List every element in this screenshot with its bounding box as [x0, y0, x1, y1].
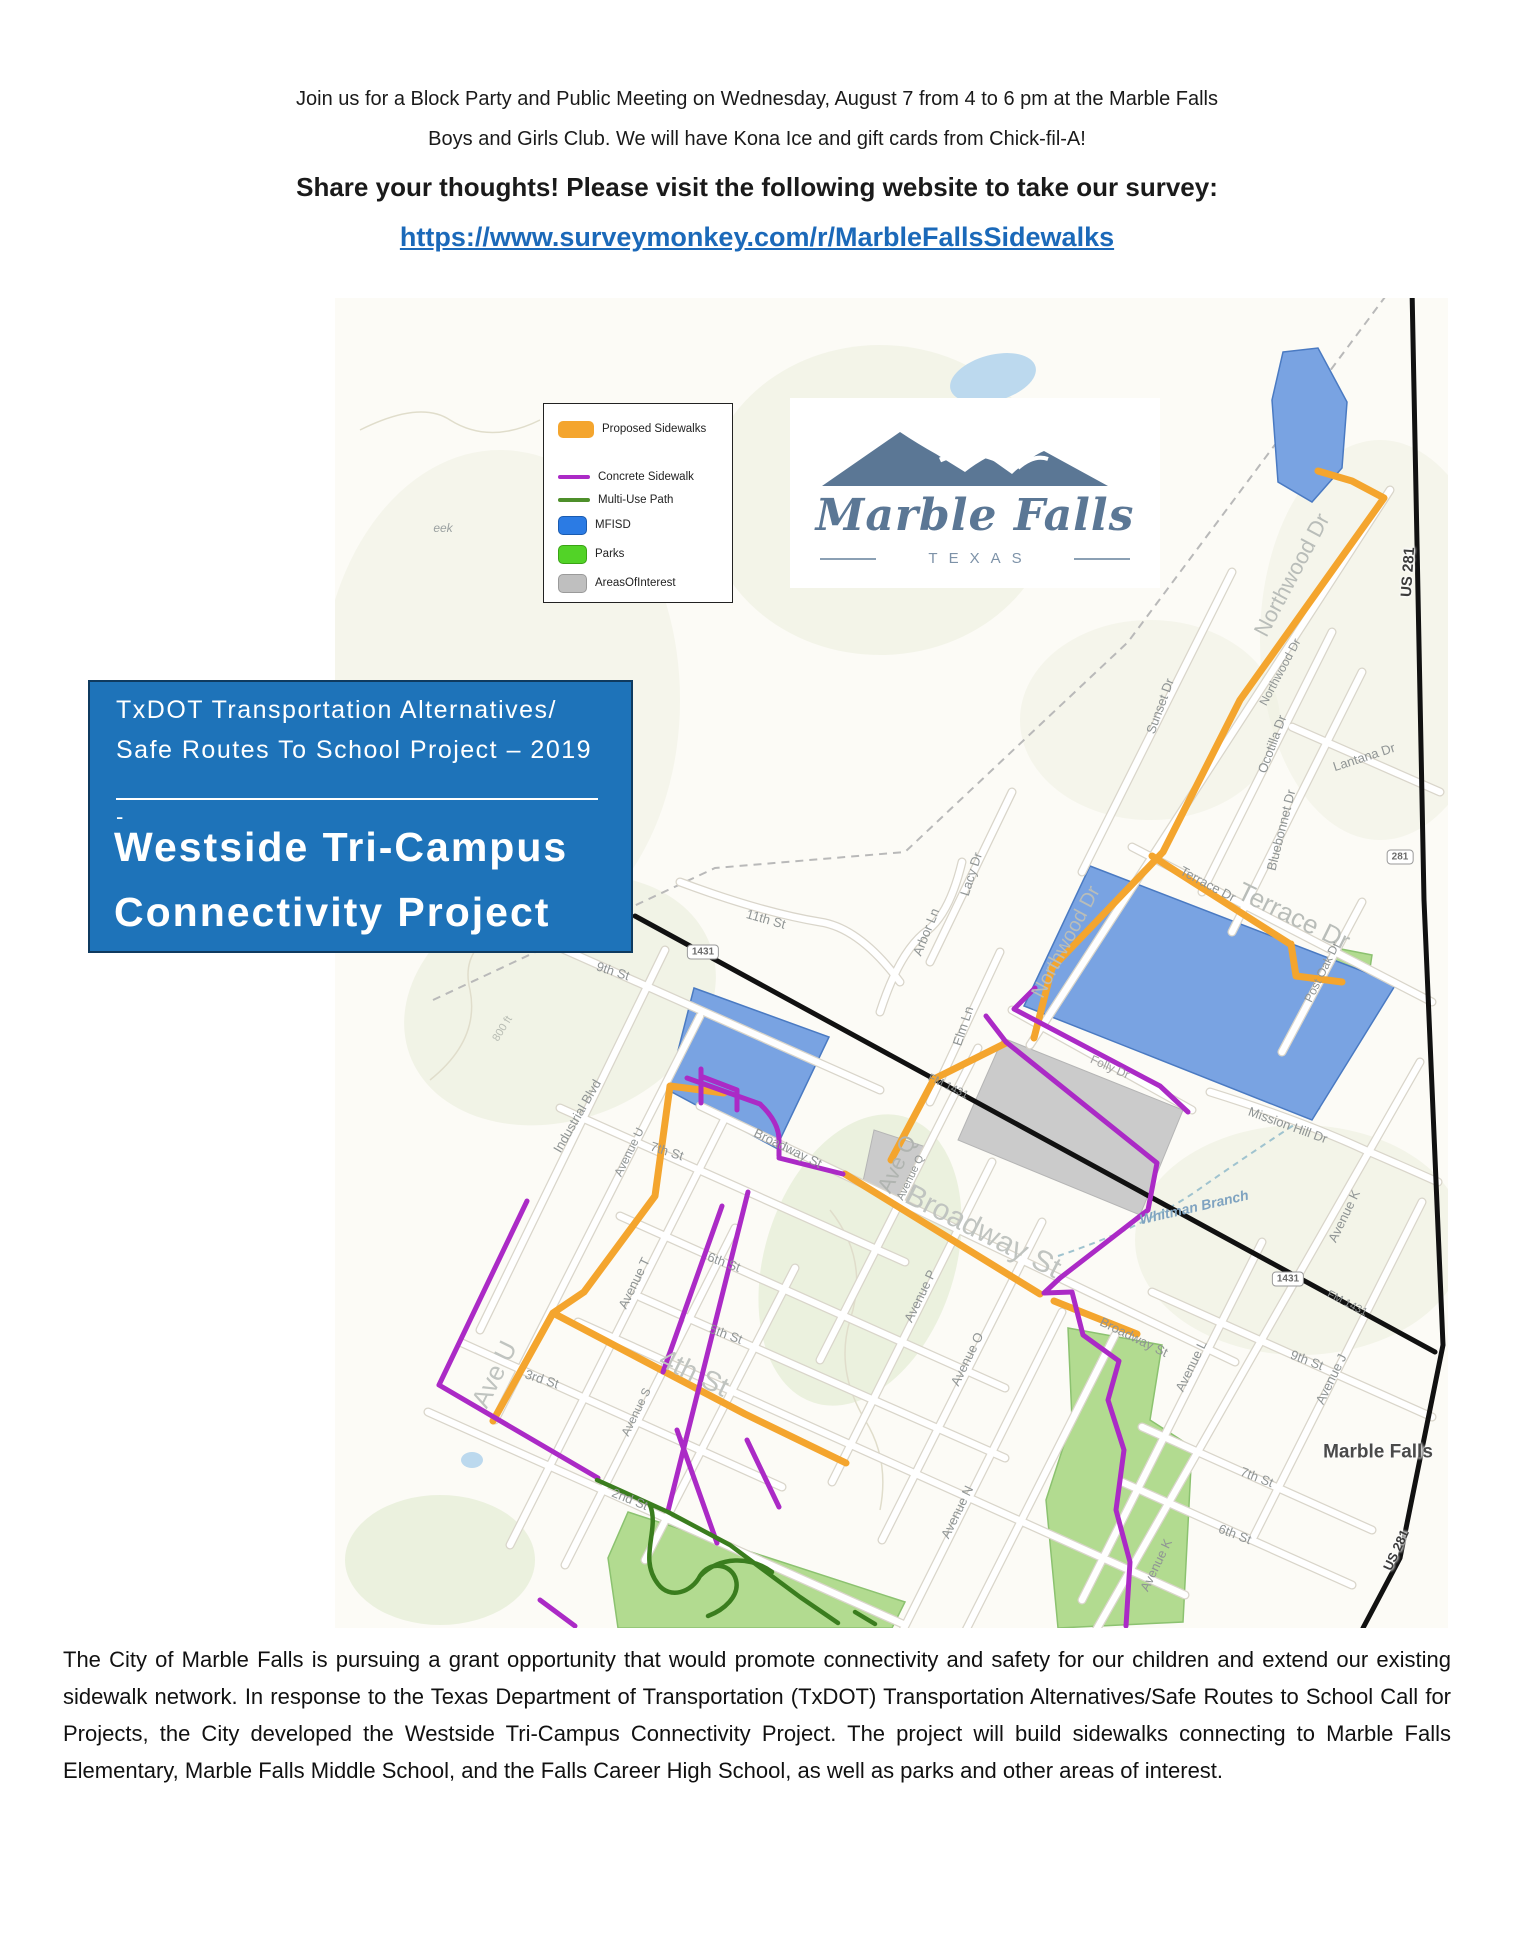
- legend-label: AreasOfInterest: [595, 577, 676, 589]
- route-shield-1431: 1431: [1272, 1272, 1304, 1287]
- city-label: Marble Falls: [1323, 1443, 1433, 1462]
- marble-falls-logo: Marble Falls TEXAS: [790, 398, 1160, 588]
- project-subtitle-line1: TxDOT Transportation Alternatives/: [116, 696, 557, 725]
- legend-label: Parks: [595, 548, 624, 560]
- route-shield-1431: 1431: [687, 945, 719, 960]
- proposed-sidewalks-swatch-icon: [558, 421, 594, 438]
- multi-use-path-swatch-icon: [558, 498, 590, 502]
- areas-of-interest-swatch-icon: [558, 574, 587, 593]
- legend-item-mfisd: MFISD: [558, 516, 732, 534]
- legend-item-parks: Parks: [558, 545, 732, 563]
- legend-item-areas-of-interest: AreasOfInterest: [558, 574, 732, 592]
- project-title-box: TxDOT Transportation Alternatives/ Safe …: [88, 680, 633, 953]
- logo-rule-left: [820, 558, 876, 560]
- project-title-line2: Connectivity Project: [114, 889, 550, 936]
- street-label: eek: [433, 522, 452, 534]
- mfisd-swatch-icon: [558, 516, 587, 535]
- legend-label: Multi-Use Path: [598, 494, 673, 506]
- project-subtitle-line2: Safe Routes To School Project – 2019: [116, 736, 592, 765]
- highway-label: US 281: [1399, 547, 1417, 598]
- legend-item-concrete-sidewalk: Concrete Sidewalk: [558, 468, 732, 486]
- legend-label: MFISD: [595, 519, 631, 531]
- logo-mountains-icon: [790, 398, 1160, 493]
- project-title-line1: Westside Tri-Campus: [114, 824, 568, 871]
- project-divider: [116, 798, 598, 800]
- legend-label: Proposed Sidewalks: [602, 423, 706, 435]
- logo-wordmark: Marble Falls: [790, 490, 1160, 541]
- logo-rule-right: [1074, 558, 1130, 560]
- map-legend: Proposed Sidewalks Concrete Sidewalk Mul…: [543, 403, 733, 603]
- map: [0, 0, 1514, 1959]
- legend-item-proposed-sidewalks: Proposed Sidewalks: [558, 420, 732, 438]
- concrete-sidewalk-swatch-icon: [558, 475, 590, 479]
- route-shield-281: 281: [1387, 850, 1414, 865]
- legend-label: Concrete Sidewalk: [598, 471, 694, 483]
- legend-item-multi-use-path: Multi-Use Path: [558, 491, 732, 509]
- parks-swatch-icon: [558, 545, 587, 564]
